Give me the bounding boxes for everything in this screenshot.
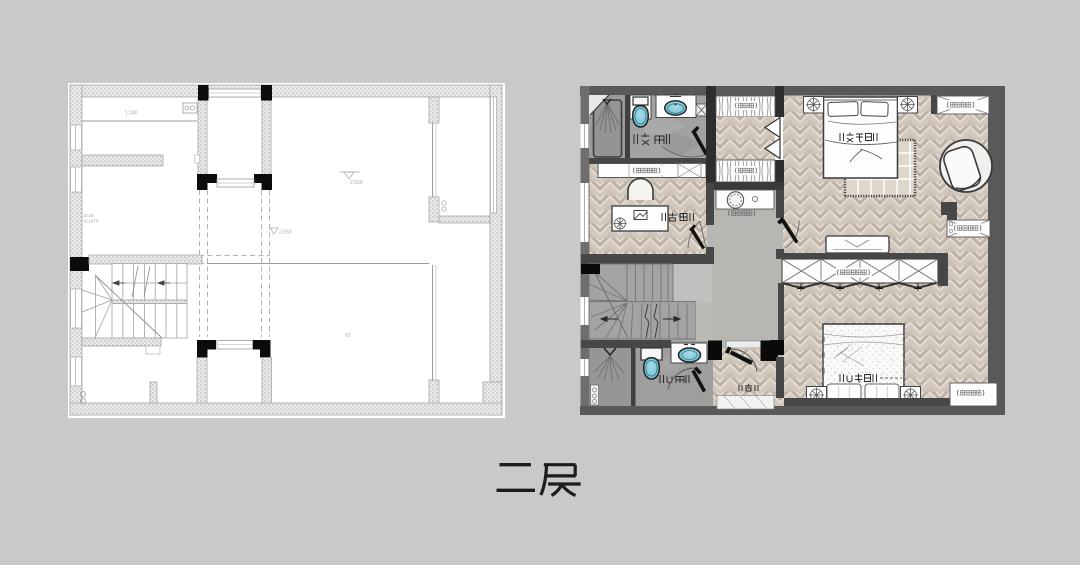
svg-text:e2: e2 [345,333,351,339]
svg-text:2.550: 2.550 [350,180,363,186]
svg-text:1:240: 1:240 [125,111,138,117]
svg-text:B:1978: B:1978 [84,219,99,224]
svg-text:B:38: B:38 [84,213,94,218]
svg-text:2.550: 2.550 [279,230,292,236]
